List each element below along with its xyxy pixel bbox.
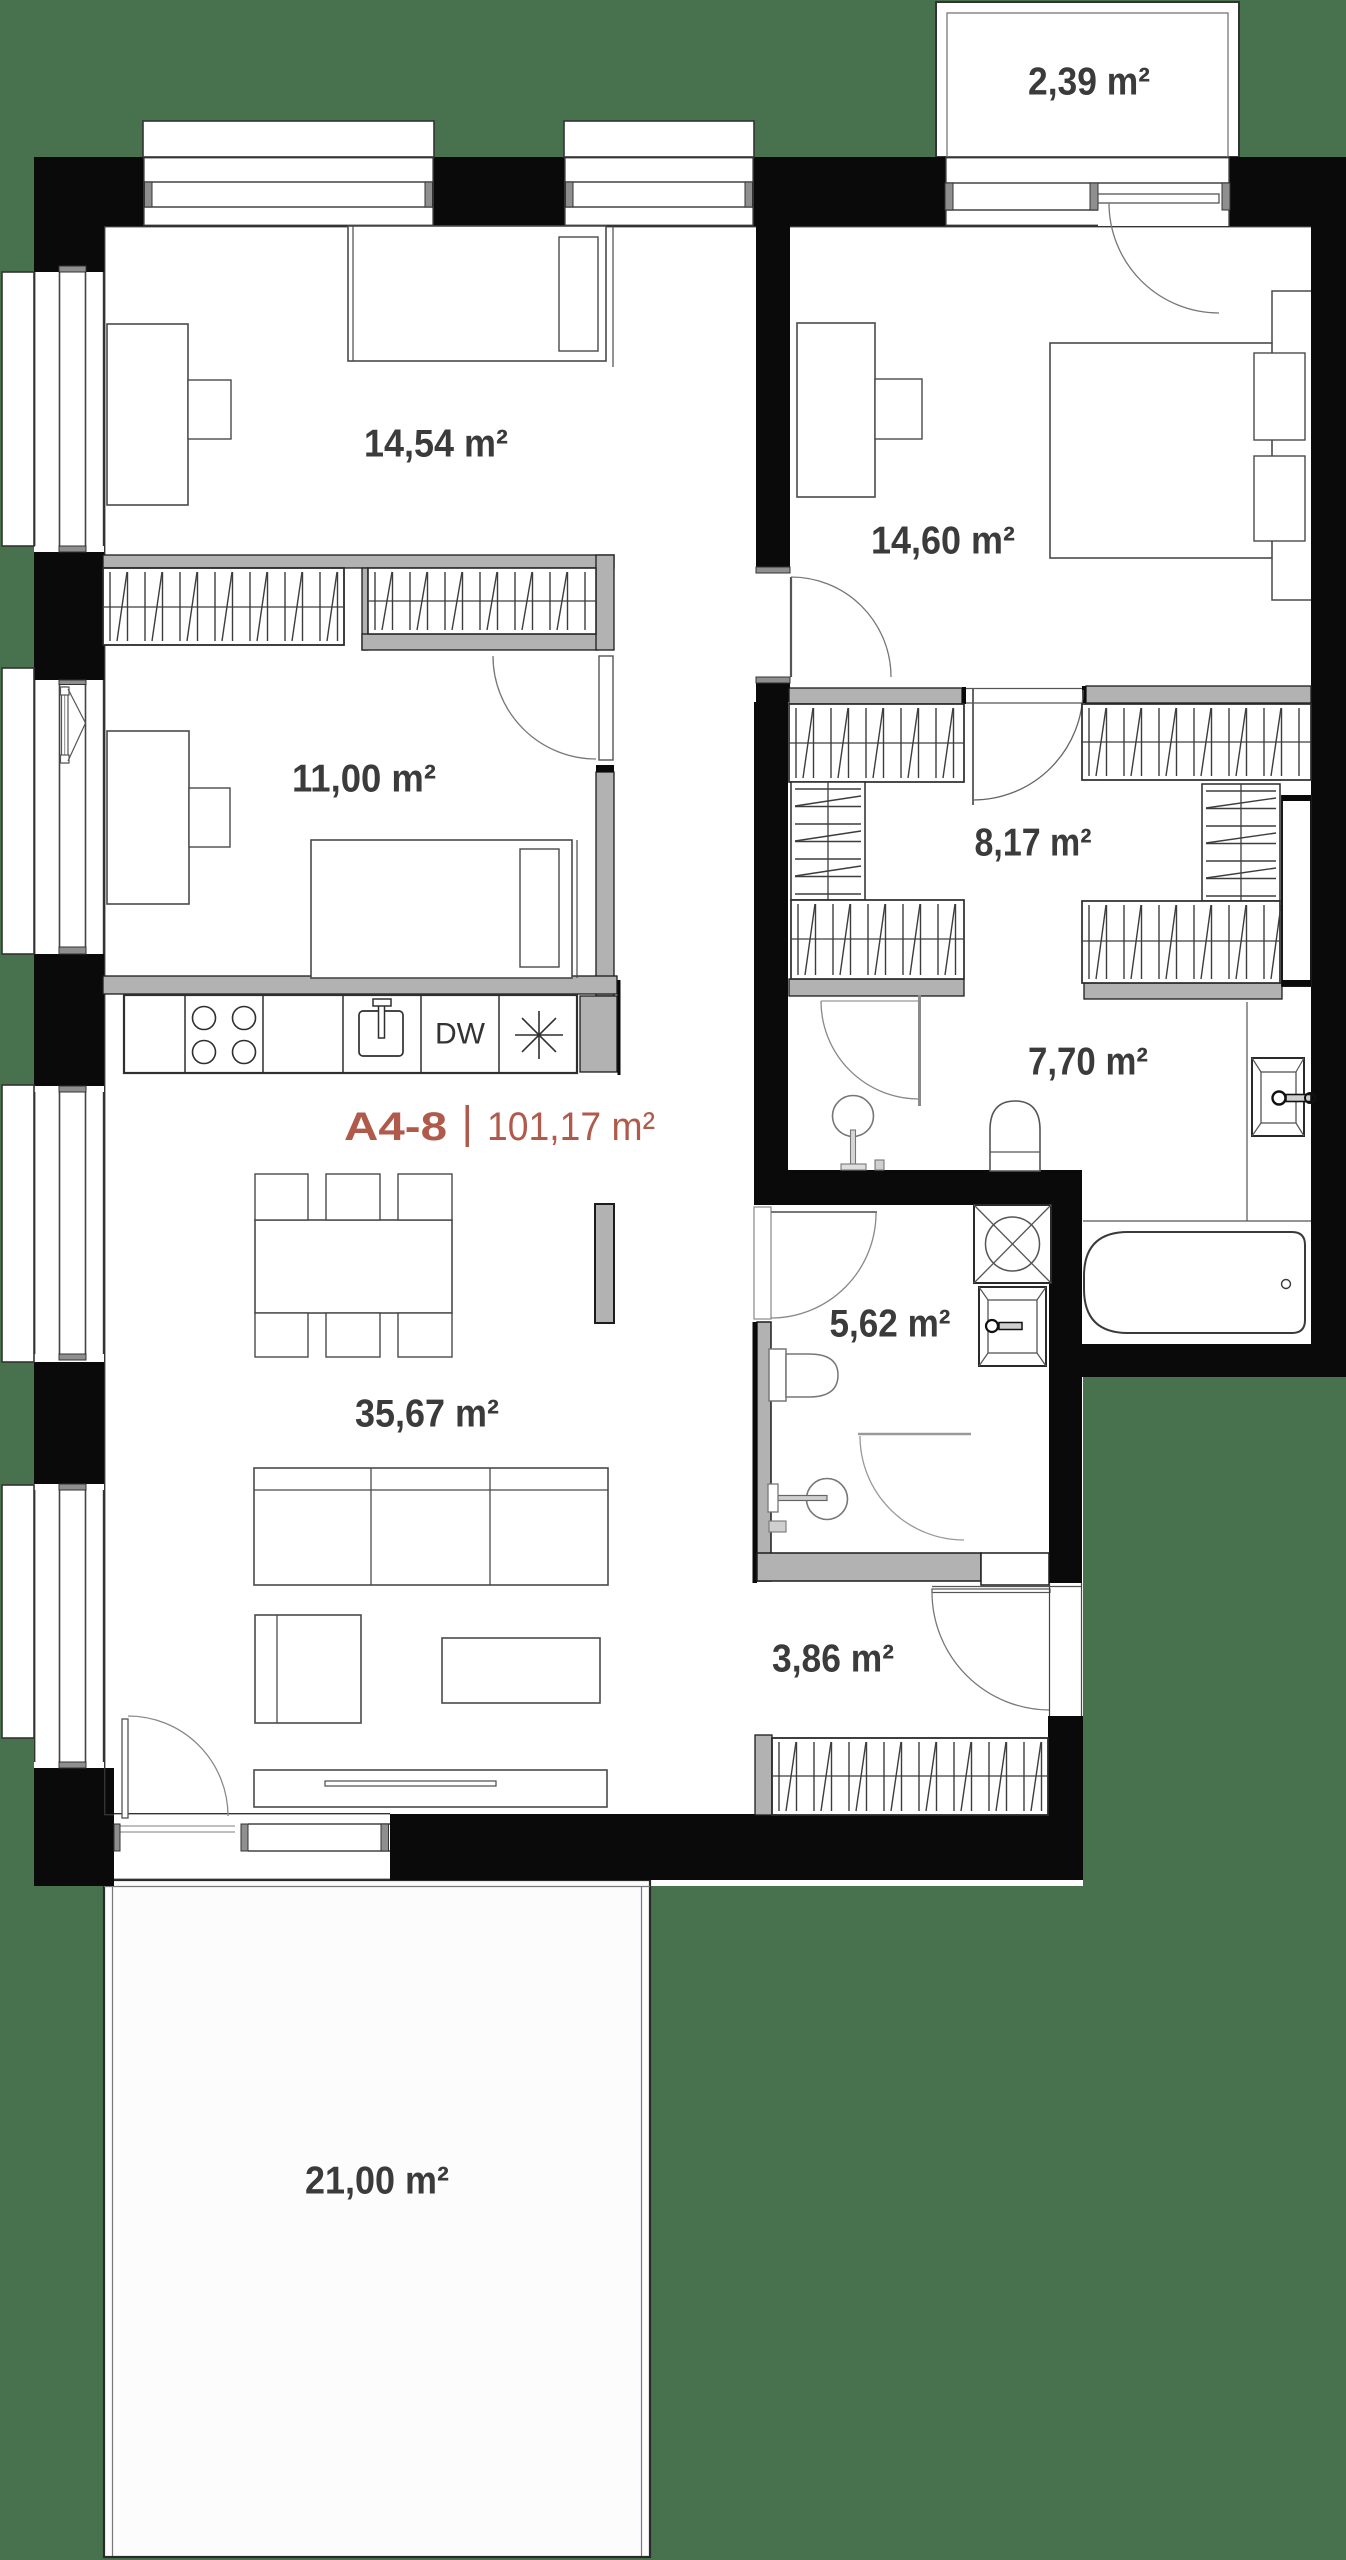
svg-text:2,39 m²: 2,39 m² — [1028, 61, 1150, 104]
svg-text:8,17 m²: 8,17 m² — [975, 822, 1092, 865]
svg-text:A4-8: A4-8 — [344, 1105, 447, 1149]
svg-text:14,54 m²: 14,54 m² — [364, 423, 508, 466]
svg-text:DW: DW — [435, 1018, 486, 1051]
svg-text:21,00 m²: 21,00 m² — [305, 2160, 449, 2203]
svg-text:14,60 m²: 14,60 m² — [871, 520, 1015, 563]
svg-text:5,62 m²: 5,62 m² — [830, 1303, 951, 1346]
svg-text:35,67 m²: 35,67 m² — [355, 1393, 499, 1436]
svg-text:7,70 m²: 7,70 m² — [1028, 1041, 1148, 1084]
svg-text:3,86 m²: 3,86 m² — [772, 1638, 894, 1681]
svg-text:11,00 m²: 11,00 m² — [292, 758, 436, 801]
svg-text:101,17 m²: 101,17 m² — [487, 1105, 655, 1149]
